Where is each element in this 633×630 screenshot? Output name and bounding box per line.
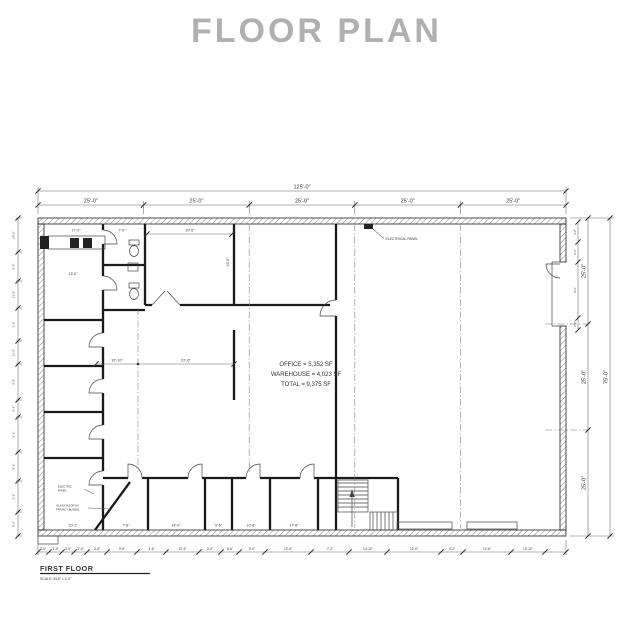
dim-office1: 10'-2" xyxy=(69,524,79,528)
bottom-dim: 3'-0" xyxy=(249,547,255,551)
left-dim-labels: 10'-2" 3'-0" 11'-6" 2'-6" 11'-6" 3'-0" 9… xyxy=(12,231,16,527)
title-block: FIRST FLOOR SCALE: 3/16" = 1'-0" xyxy=(40,564,150,581)
dim-conference-width: 20'-6" xyxy=(186,229,196,233)
bottom-dim: 3'-0" xyxy=(40,547,46,551)
bottom-dim: 8'-6" xyxy=(227,547,233,551)
bottom-dim: 12'-6" xyxy=(483,547,491,551)
dim-top-seg-5: 25'-0" xyxy=(506,199,520,205)
floor-plan-page: FLOOR PLAN xyxy=(0,0,633,630)
dim-conference-depth: 16'-6" xyxy=(226,257,230,267)
bottom-dim: 7'-2" xyxy=(327,547,333,551)
dim-top-seg-3: 25'-0" xyxy=(295,199,309,205)
floor-plan-drawing: 125'-0" 25'-0" 25'-0" 25'-0" 25'-0" 25'-… xyxy=(0,0,633,630)
dim-right-seg-1: 25'-0" xyxy=(582,264,588,278)
bottom-dim: 10'-10" xyxy=(523,547,533,551)
dim-corridor: 7'-0" xyxy=(119,229,127,233)
left-dim: 11'-6" xyxy=(12,291,16,298)
door-swings xyxy=(89,230,560,485)
bottom-dim: 3'-0" xyxy=(65,547,71,551)
bottom-dim: 12'-6" xyxy=(178,547,186,551)
sheet-title: FIRST FLOOR xyxy=(40,564,94,573)
area-summary: OFFICE = 5,352 SF WAREHOUSE = 4,023 SF T… xyxy=(271,362,342,388)
dim-office4: 5'-6" xyxy=(215,524,223,528)
dim-top-seg-2: 25'-0" xyxy=(189,199,203,205)
bottom-dim: 4'-2" xyxy=(449,547,455,551)
bottom-dim: 3'-0" xyxy=(207,547,213,551)
toilet-icon xyxy=(129,283,139,288)
stairs xyxy=(338,480,398,530)
dim-right-seg-3: 25'-0" xyxy=(582,476,588,490)
electrical-panel-label: ELECTRICAL PANEL xyxy=(386,237,419,241)
appliance-icon xyxy=(83,238,92,248)
equipment-icon xyxy=(40,236,49,249)
left-dim: 9'-6" xyxy=(12,406,16,412)
bottom-dim: 3'-6" xyxy=(148,547,154,551)
door-note-line2: PRIVACY BLINDS xyxy=(56,508,79,512)
bottom-dim: 14'-10" xyxy=(363,547,373,551)
interior-walls xyxy=(44,224,398,530)
dim-open-right: 22'-6" xyxy=(181,359,191,363)
left-dim: 10'-2" xyxy=(12,231,16,239)
left-dim: 11'-6" xyxy=(12,349,16,356)
right-door-dim: 2'-0" xyxy=(573,321,577,327)
left-dim: 8'-6" xyxy=(12,464,16,470)
dim-office5: 10'-6" xyxy=(247,524,257,528)
bottom-dim: 9'-6" xyxy=(119,547,125,551)
exterior-walls xyxy=(38,218,566,544)
bottom-dim: 12'-6" xyxy=(284,547,292,551)
annotations: ELECTRICAL PANEL ELECTRIC PANEL GLASS DO… xyxy=(56,229,418,512)
dim-office2: 7'-8" xyxy=(123,524,131,528)
stair-direction-arrow xyxy=(350,489,355,497)
left-dim: 3'-2" xyxy=(12,494,16,500)
dim-right-seg-2: 25'-0" xyxy=(582,370,588,384)
dim-reception-depth: 13'-0" xyxy=(69,272,79,276)
bottom-dim-labels: 3'-0" 3'-0" 3'-0" 3'-0" 3'-6" 9'-6" 3'-6… xyxy=(40,547,533,551)
office-area-label: OFFICE = 5,352 SF xyxy=(279,362,333,368)
dim-overall-depth: 75'-0" xyxy=(604,370,610,384)
bottom-dim: 12'-6" xyxy=(410,547,418,551)
bottom-dim: 3'-0" xyxy=(52,547,58,551)
left-dim: 3'-0" xyxy=(12,264,16,270)
major-dim-labels: 125'-0" 25'-0" 25'-0" 25'-0" 25'-0" 25'-… xyxy=(84,185,610,491)
bottom-dim: 3'-6" xyxy=(94,547,100,551)
left-dim: 3'-2" xyxy=(12,432,16,438)
left-dim: 5'-6" xyxy=(12,521,16,527)
left-dim: 2'-6" xyxy=(12,322,16,328)
dim-top-seg-4: 25'-0" xyxy=(401,199,415,205)
dim-open-left: 10'-10" xyxy=(111,359,123,363)
bottom-dim: 3'-0" xyxy=(77,547,83,551)
dim-overall-width: 125'-0" xyxy=(293,185,310,191)
right-door-dim: 2'-0" xyxy=(573,249,577,255)
electrical-panel-icon xyxy=(364,224,373,229)
appliance-icon xyxy=(70,238,79,248)
sheet-scale: SCALE: 3/16" = 1'-0" xyxy=(40,577,72,581)
dim-office6: 17'-8" xyxy=(290,524,300,528)
electric-note-line2: PANEL xyxy=(58,489,67,493)
dim-top-seg-1: 25'-0" xyxy=(84,199,98,205)
dim-reception-width: 17'-0" xyxy=(72,229,82,233)
dim-office3: 14'-6" xyxy=(172,524,182,528)
left-dim: 3'-0" xyxy=(12,379,16,385)
right-door-dim: 4'-0" xyxy=(573,229,577,235)
dock-ramp xyxy=(397,522,452,529)
toilet-icon xyxy=(129,240,139,245)
total-area-label: TOTAL = 9,375 SF xyxy=(281,382,331,388)
dock-ramp xyxy=(467,522,517,529)
warehouse-area-label: WAREHOUSE = 4,023 SF xyxy=(271,372,342,378)
right-door-dim: 8'-0" xyxy=(573,287,577,293)
